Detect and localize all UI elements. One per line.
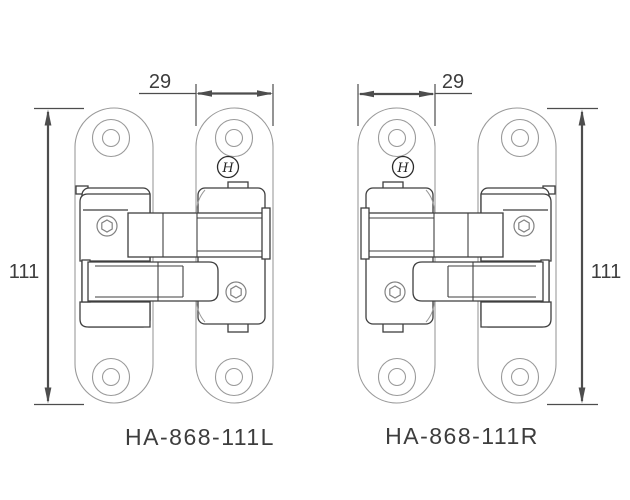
- hinge-right-drawing: [358, 108, 556, 403]
- dimension-width-left-value: 29: [149, 71, 171, 93]
- model-label-right: HA-868-111R: [385, 423, 539, 449]
- arrowhead-up-icon: [45, 110, 52, 126]
- arrowhead-up-icon: [579, 110, 586, 126]
- dimension-height-left-value: 111: [9, 261, 39, 283]
- arrowhead-right-icon: [257, 90, 273, 97]
- arrowhead-left-icon: [196, 90, 212, 97]
- arrowhead-down-icon: [579, 388, 586, 404]
- arrowhead-right-icon: [419, 91, 435, 98]
- drawing-canvas: H H 29 29 111 111 HA-868-111L HA: [0, 0, 630, 500]
- dimension-width-right-value: 29: [442, 71, 464, 93]
- brand-emblem-glyph-left: H: [221, 161, 234, 176]
- hinge-left-drawing: [75, 108, 273, 403]
- model-label-left: HA-868-111L: [125, 424, 275, 450]
- arrowhead-left-icon: [358, 91, 374, 98]
- brand-emblem-glyph-right: H: [396, 161, 409, 176]
- dimension-height-right-value: 111: [591, 261, 621, 283]
- arrowhead-down-icon: [45, 388, 52, 404]
- hinge-technical-drawing: H H 29 29 111 111 HA-868-111L HA: [0, 0, 630, 500]
